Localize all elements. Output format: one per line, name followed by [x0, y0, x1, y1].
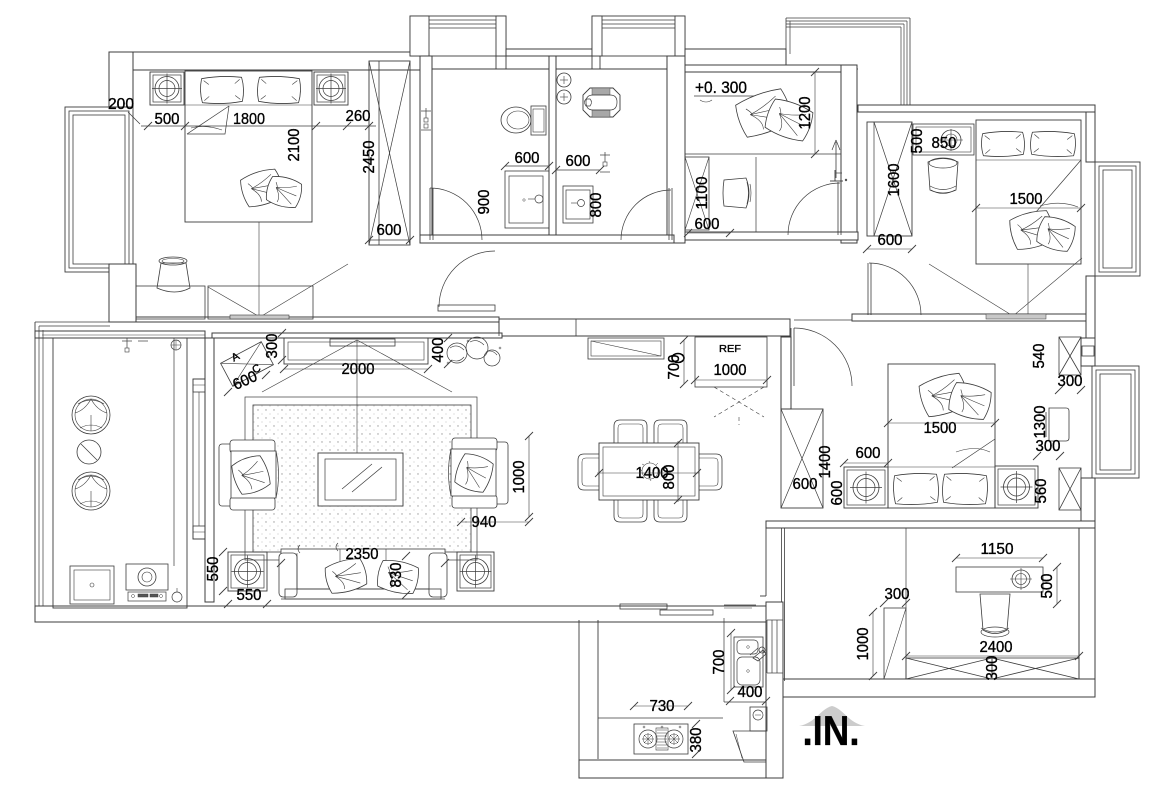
svg-text:1000: 1000 — [855, 627, 872, 660]
svg-text:2000: 2000 — [342, 361, 375, 378]
svg-text:1200: 1200 — [797, 96, 814, 129]
svg-text:600: 600 — [793, 476, 818, 493]
svg-text:300: 300 — [885, 586, 910, 603]
svg-text:600: 600 — [856, 445, 881, 462]
svg-text:300: 300 — [1036, 438, 1061, 455]
svg-text:1100: 1100 — [694, 176, 711, 209]
svg-text:550: 550 — [205, 556, 222, 581]
svg-text:REF: REF — [719, 344, 741, 355]
svg-text:800: 800 — [661, 464, 678, 489]
svg-text:730: 730 — [650, 698, 675, 715]
svg-text:600: 600 — [566, 153, 591, 170]
svg-text:800: 800 — [588, 192, 605, 217]
svg-text:830: 830 — [388, 562, 405, 587]
svg-text:2400: 2400 — [980, 639, 1013, 656]
svg-text:900: 900 — [476, 189, 493, 214]
svg-text:+0. 300: +0. 300 — [695, 78, 747, 97]
svg-text:1500: 1500 — [924, 420, 957, 437]
svg-text:1800: 1800 — [233, 111, 265, 128]
svg-text:2350: 2350 — [346, 546, 379, 563]
svg-text:600: 600 — [878, 232, 903, 249]
svg-text:2450: 2450 — [361, 140, 378, 173]
svg-text:A: A — [230, 350, 243, 364]
svg-text:600: 600 — [377, 222, 402, 239]
svg-text:1400: 1400 — [817, 445, 834, 478]
svg-text:500: 500 — [1039, 573, 1056, 598]
svg-text:1500: 1500 — [1010, 191, 1043, 208]
svg-text:380: 380 — [688, 727, 705, 752]
svg-text:1600: 1600 — [886, 163, 903, 196]
svg-text:700: 700 — [666, 354, 683, 379]
svg-text:1150: 1150 — [981, 541, 1014, 558]
svg-text:600: 600 — [829, 480, 846, 505]
svg-text:600: 600 — [695, 216, 720, 233]
svg-text:260: 260 — [346, 108, 371, 125]
svg-text:850: 850 — [932, 135, 957, 152]
svg-text:500: 500 — [155, 111, 180, 128]
svg-text:2100: 2100 — [286, 128, 303, 161]
svg-text:200: 200 — [108, 96, 134, 113]
svg-text:1000: 1000 — [714, 362, 747, 379]
svg-text:550: 550 — [237, 587, 262, 604]
svg-text:1300: 1300 — [1032, 405, 1049, 438]
svg-text:560: 560 — [1033, 478, 1050, 503]
svg-text:940: 940 — [472, 514, 497, 531]
svg-text:.IN.: .IN. — [803, 707, 860, 754]
svg-text:700: 700 — [711, 649, 728, 674]
svg-text:400: 400 — [738, 684, 763, 701]
svg-text:1000: 1000 — [511, 460, 528, 493]
svg-text:300: 300 — [984, 655, 1001, 680]
svg-text:500: 500 — [909, 128, 926, 153]
svg-text:540: 540 — [1031, 343, 1048, 368]
svg-text:600: 600 — [515, 150, 540, 167]
